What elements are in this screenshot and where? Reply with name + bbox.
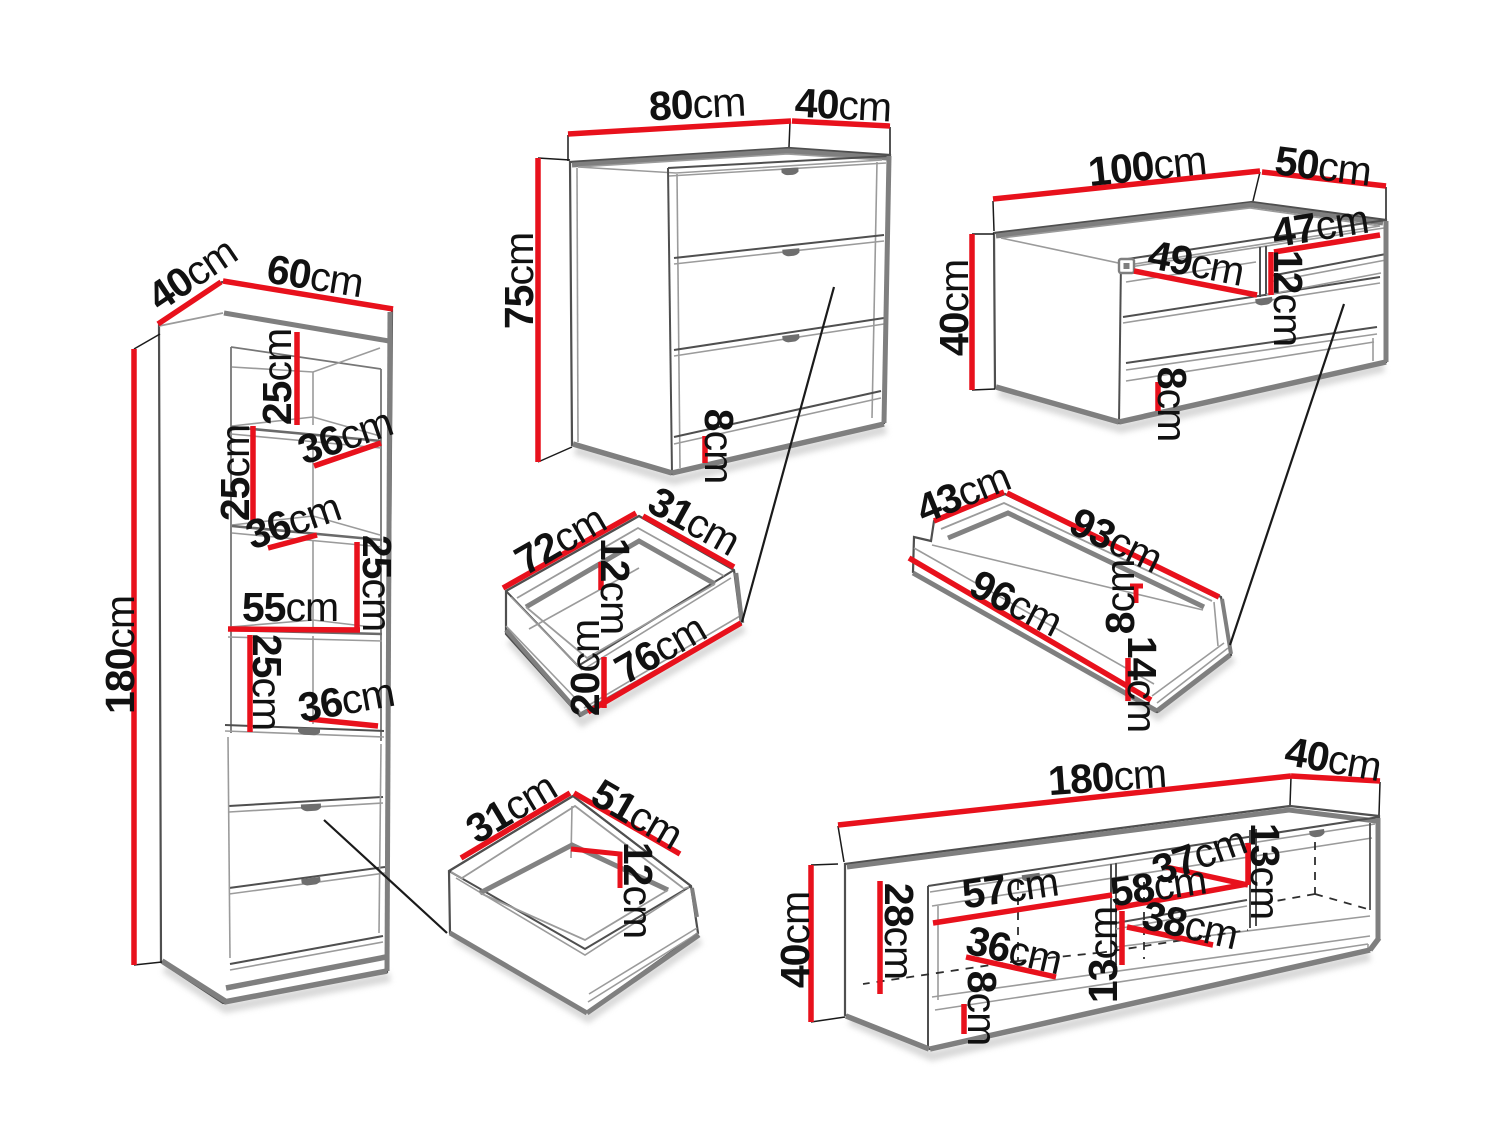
- svg-text:55cm: 55cm: [242, 584, 338, 630]
- svg-text:40cm: 40cm: [772, 892, 818, 988]
- svg-text:40cm: 40cm: [931, 260, 977, 356]
- svg-text:8cm: 8cm: [1149, 367, 1195, 441]
- svg-text:80cm: 80cm: [648, 79, 747, 130]
- svg-text:12cm: 12cm: [615, 842, 661, 938]
- svg-text:25cm: 25cm: [212, 425, 258, 521]
- svg-text:13cm: 13cm: [1242, 823, 1288, 919]
- svg-text:40cm: 40cm: [794, 80, 893, 131]
- svg-text:13cm: 13cm: [1080, 907, 1126, 1003]
- svg-text:20cm: 20cm: [562, 620, 608, 716]
- svg-text:8cm: 8cm: [959, 971, 1005, 1045]
- svg-text:12cm: 12cm: [1265, 250, 1311, 346]
- svg-text:12cm: 12cm: [592, 538, 638, 634]
- svg-text:8cm: 8cm: [696, 409, 742, 483]
- svg-text:180cm: 180cm: [1047, 750, 1168, 804]
- svg-text:25cm: 25cm: [244, 634, 290, 730]
- svg-text:14cm: 14cm: [1119, 636, 1165, 732]
- svg-text:28cm: 28cm: [876, 883, 922, 979]
- svg-text:75cm: 75cm: [496, 233, 542, 329]
- svg-text:25cm: 25cm: [254, 329, 300, 425]
- svg-text:25cm: 25cm: [354, 535, 400, 631]
- svg-text:180cm: 180cm: [97, 596, 143, 714]
- svg-text:8cm: 8cm: [1097, 560, 1143, 634]
